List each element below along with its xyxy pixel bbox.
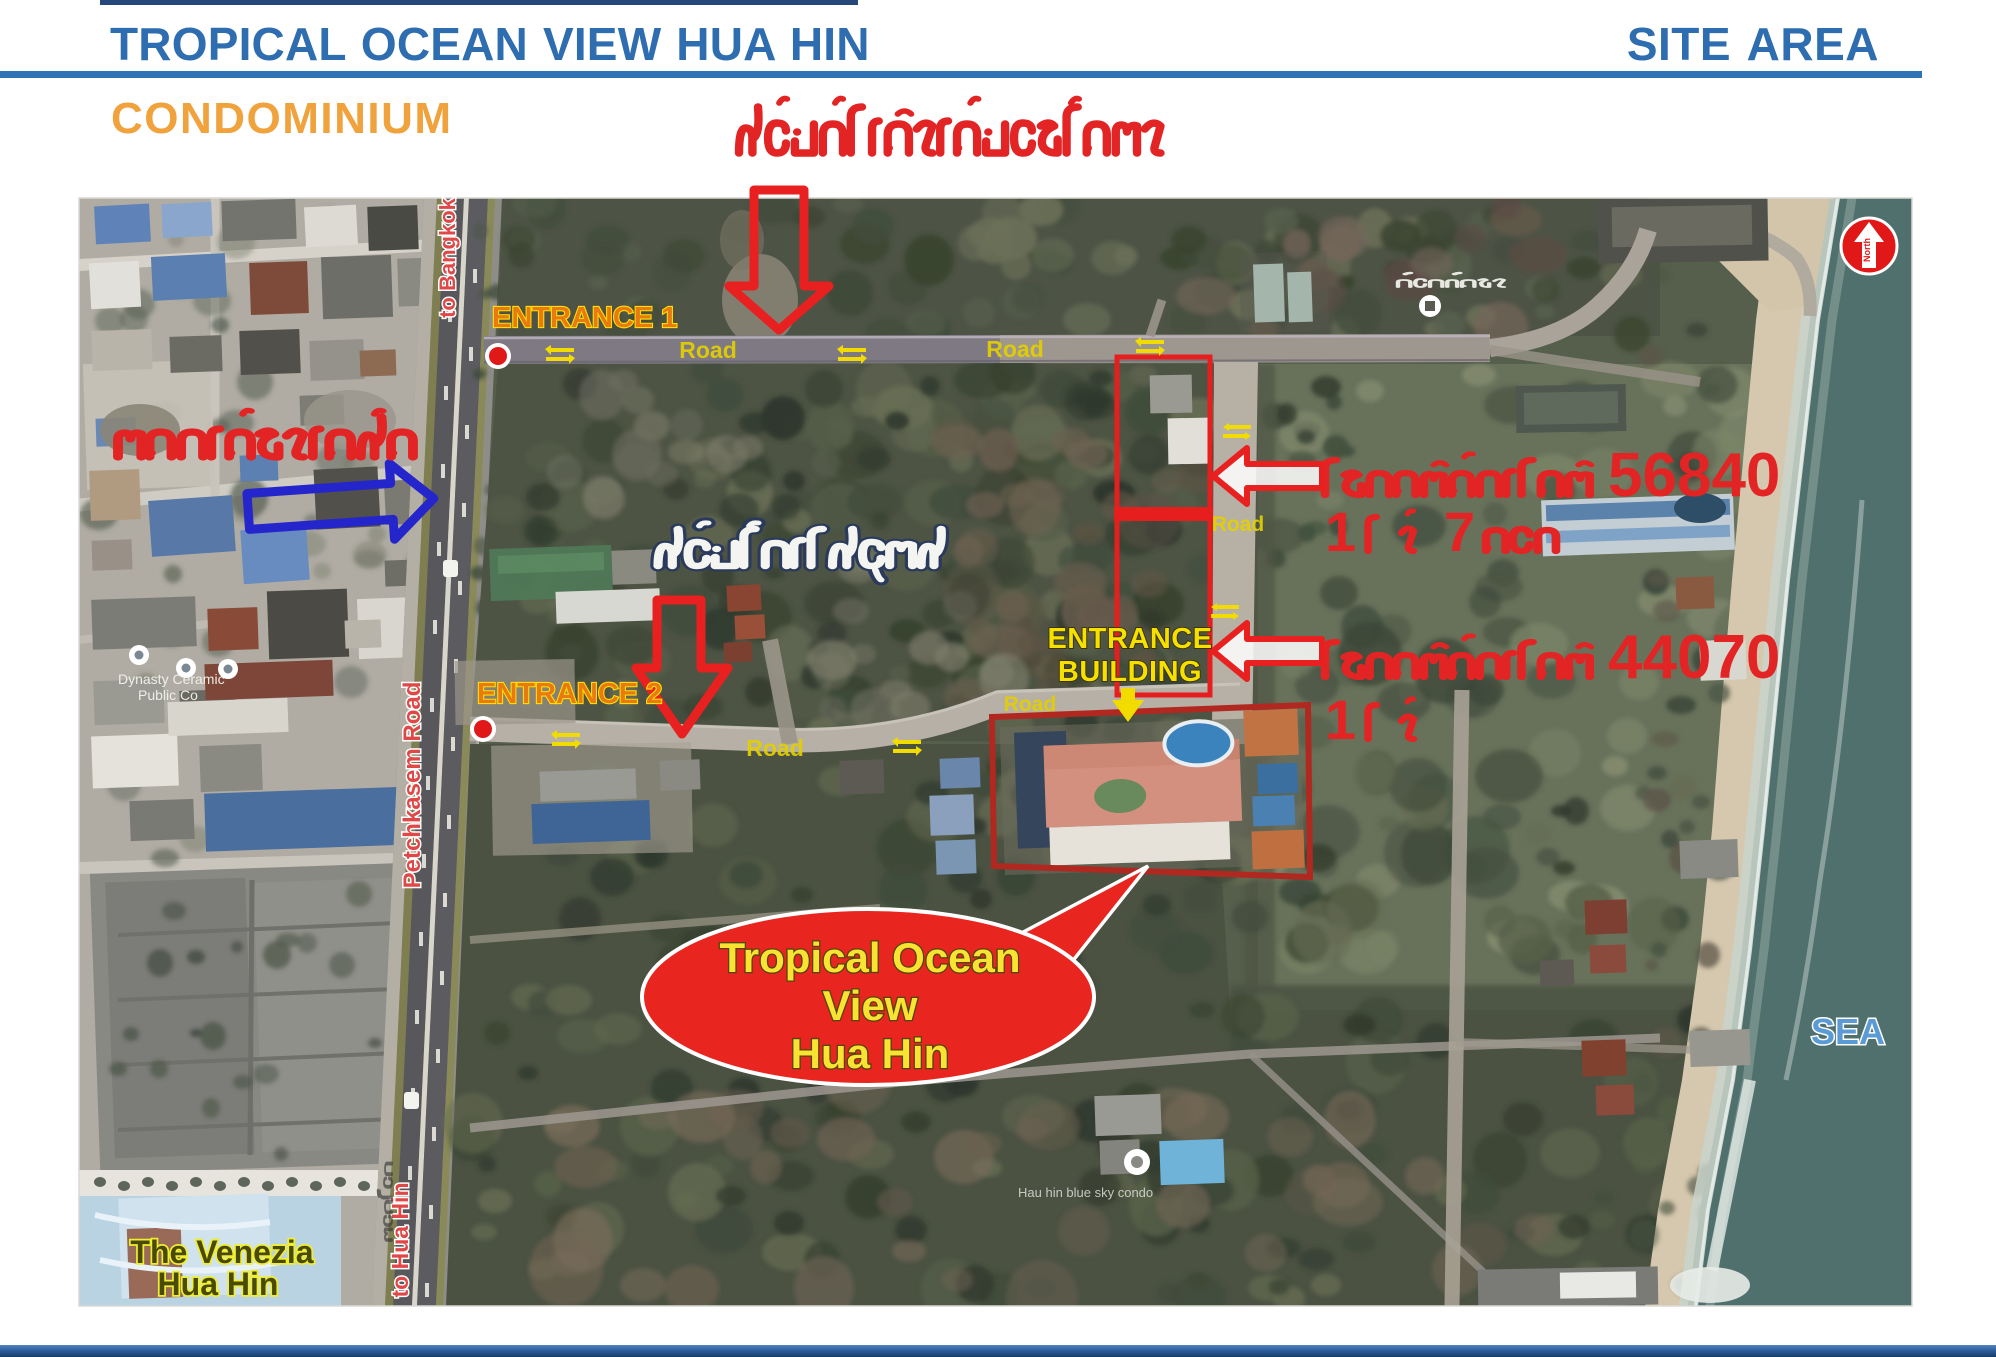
svg-text:Road: Road: [1212, 513, 1265, 536]
svg-text:CONDOMINIUM: CONDOMINIUM: [111, 94, 453, 143]
svg-text:Hau hin blue sky condo: Hau hin blue sky condo: [1018, 1185, 1153, 1200]
svg-text:Road: Road: [746, 735, 804, 761]
svg-text:Petchkasem Road: Petchkasem Road: [399, 682, 426, 889]
svg-text:56840: 56840: [1608, 441, 1780, 510]
svg-text:7: 7: [1444, 500, 1475, 563]
svg-text:BUILDING: BUILDING: [1058, 656, 1202, 688]
svg-text:to Bangkok: to Bangkok: [435, 197, 460, 318]
svg-text:TROPICAL OCEAN VIEW HUA HIN: TROPICAL OCEAN VIEW HUA HIN: [110, 18, 870, 70]
svg-text:SEA: SEA: [1811, 1011, 1885, 1052]
svg-text:Road: Road: [679, 337, 737, 363]
svg-text:Public Co: Public Co: [138, 687, 198, 703]
svg-text:SITE AREA: SITE AREA: [1627, 18, 1879, 70]
svg-text:44070: 44070: [1608, 623, 1780, 692]
svg-text:ENTRANCE: ENTRANCE: [1047, 623, 1212, 655]
svg-text:ENTRANCE 2: ENTRANCE 2: [477, 678, 662, 710]
svg-text:The Venezia: The Venezia: [130, 1234, 313, 1270]
svg-text:Hua Hin: Hua Hin: [158, 1266, 279, 1302]
svg-text:Hua Hin: Hua Hin: [791, 1030, 950, 1077]
svg-text:Road: Road: [1004, 693, 1057, 716]
svg-text:1: 1: [1325, 500, 1356, 563]
svg-text:Tropical Ocean: Tropical Ocean: [719, 934, 1020, 981]
svg-text:Road: Road: [986, 336, 1044, 362]
svg-text:1: 1: [1325, 688, 1356, 751]
svg-text:Dynasty Ceramic: Dynasty Ceramic: [118, 671, 225, 687]
svg-text:View: View: [823, 982, 918, 1029]
svg-text:North: North: [1862, 238, 1872, 262]
svg-text:ENTRANCE 1: ENTRANCE 1: [492, 302, 677, 334]
